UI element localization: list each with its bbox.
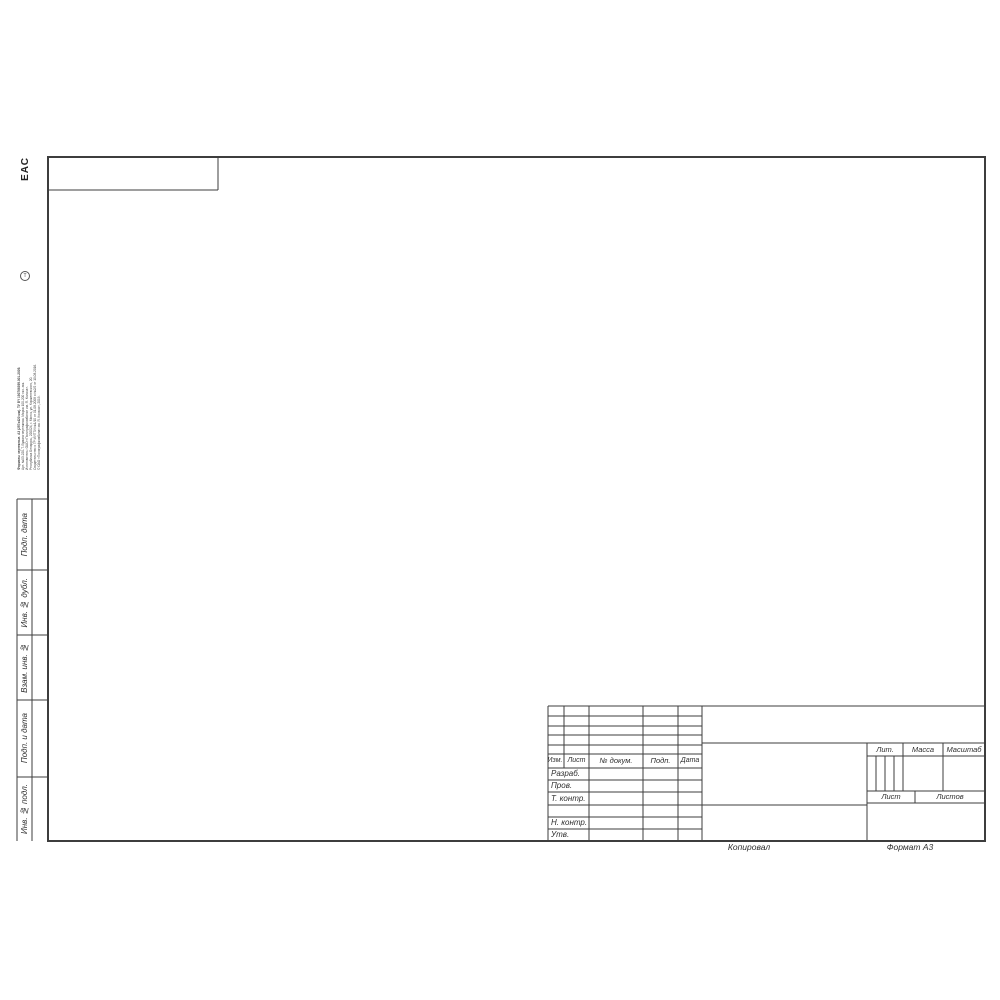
side-label: Инв. № подл.: [20, 784, 29, 834]
header-podp: Подп.: [643, 754, 678, 768]
header-scale: Масштаб: [943, 743, 985, 756]
row-razrab: Разраб.: [551, 768, 599, 780]
header-izm: Изм.: [546, 754, 564, 768]
header-doc-num: № докум.: [589, 754, 643, 768]
side-label: Подп. и дата: [20, 713, 29, 763]
side-cell-vzam-inv: Взам. инв. №: [17, 635, 32, 700]
drawing-frame-lines: [0, 0, 1000, 1000]
corner-designation-box: [49, 158, 218, 190]
manufacturer-imprint: Форматы чертежные. А3 (297х420 мм). ТУ B…: [17, 286, 41, 470]
side-cell-inv-dubl: Инв. № дубл.: [17, 570, 32, 635]
header-mass: Масса: [903, 743, 943, 756]
header-data: Дата: [678, 754, 702, 768]
certification-mark-icon: Т: [20, 271, 30, 281]
eac-mark-text: ЕАС: [20, 157, 31, 181]
side-cell-podp-data: Подп. дата: [17, 499, 32, 570]
format-label: Формат А3: [858, 842, 962, 853]
imprint-line: © ОАО «Полиграфкомбинат им. Я. Коласа», …: [37, 286, 41, 470]
header-sheets-total: Листов: [915, 791, 985, 803]
side-cell-podp-i-data: Подп. и дата: [17, 700, 32, 777]
side-cell-inv-podl: Инв. № подл.: [17, 777, 32, 841]
header-sheet: Лист: [867, 791, 915, 803]
eac-conformity-mark: ЕАС: [12, 152, 38, 186]
copied-by-label: Копировал: [699, 842, 799, 853]
row-empty: [551, 805, 599, 817]
side-label: Взам. инв. №: [20, 643, 29, 693]
row-t-kontr: Т. контр.: [551, 792, 599, 805]
side-label: Инв. № дубл.: [20, 578, 29, 628]
header-list: Лист: [564, 754, 589, 768]
side-label: Подп. дата: [20, 513, 29, 556]
title-block-grid: [548, 706, 985, 841]
row-n-kontr: Н. контр.: [551, 817, 599, 829]
header-lit: Лит.: [867, 743, 903, 756]
drawing-frame: [48, 157, 985, 841]
row-prov: Пров.: [551, 780, 599, 792]
paper-sheet: ЕАС Т Форматы чертежные. А3 (297х420 мм)…: [0, 0, 1000, 1000]
row-utv: Утв.: [551, 829, 599, 841]
